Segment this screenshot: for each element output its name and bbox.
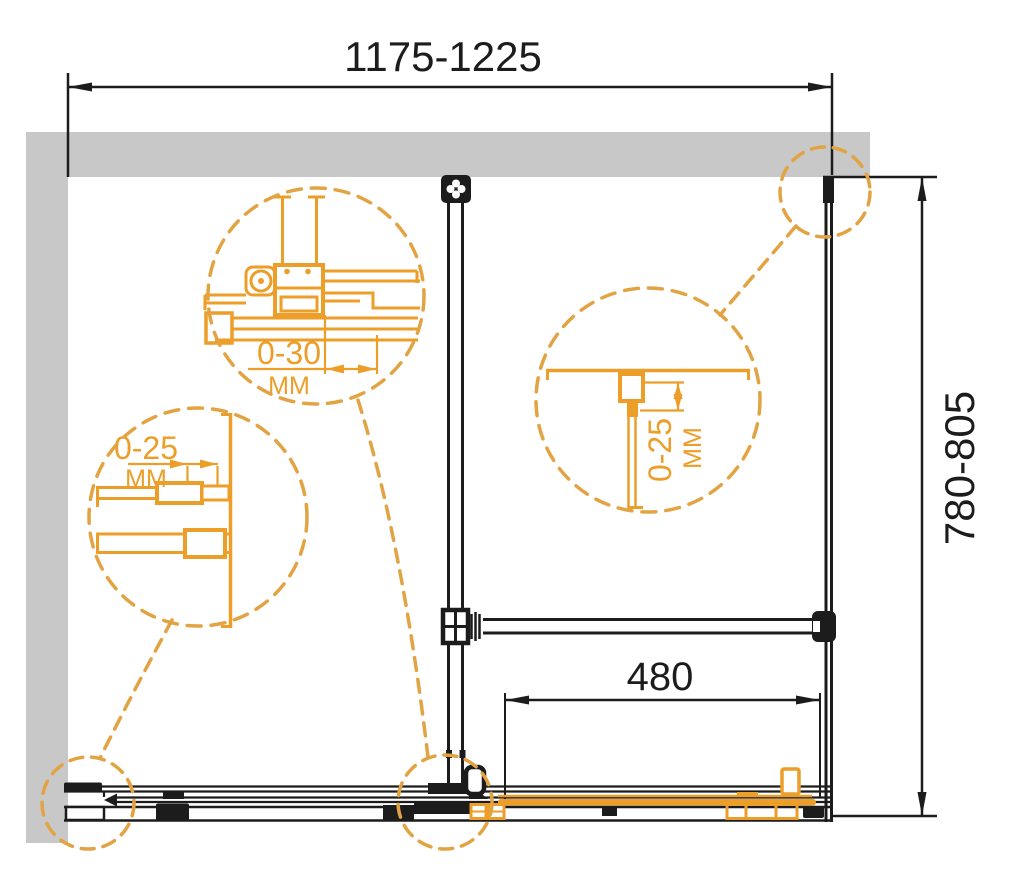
wall-bracket-icon bbox=[441, 175, 471, 203]
stabilizer-bar bbox=[443, 610, 836, 643]
wall-side-left bbox=[26, 132, 68, 843]
sliding-door bbox=[471, 769, 816, 819]
door-guide-bracket-icon bbox=[466, 767, 484, 794]
right-profile-adjust-unit: MM bbox=[679, 427, 707, 469]
rail-end-cap-icon bbox=[64, 783, 102, 793]
dimension-opening: 480 bbox=[505, 655, 820, 799]
callout-connector bbox=[720, 226, 796, 315]
left-profile-adjust-unit: MM bbox=[125, 465, 167, 493]
depth-dimension-label: 780-805 bbox=[936, 391, 983, 545]
roller-adjust-value: 0-30 bbox=[257, 335, 321, 371]
side-panel-right bbox=[823, 177, 834, 822]
door-handle-icon bbox=[782, 769, 799, 794]
rail-arrow-cap-icon bbox=[104, 794, 117, 807]
bar-clamp-left-icon bbox=[443, 610, 480, 643]
wall-profile-icon bbox=[823, 177, 834, 203]
callout-connector bbox=[358, 400, 428, 757]
detail-right-dimension: 0-25 MM bbox=[640, 382, 707, 482]
opening-dimension-label: 480 bbox=[627, 655, 694, 699]
right-profile-adjust-value: 0-25 bbox=[642, 418, 678, 482]
technical-drawing-page: 1175-1225 780-805 480 bbox=[0, 0, 1017, 889]
fixed-panel-middle bbox=[441, 175, 471, 783]
shower-enclosure-plan-diagram: 1175-1225 780-805 480 bbox=[0, 0, 1017, 889]
bottom-rail-cap-icon bbox=[66, 807, 104, 820]
width-dimension-label: 1175-1225 bbox=[344, 33, 542, 80]
dimension-depth: 780-805 bbox=[823, 177, 983, 816]
wall-back bbox=[26, 132, 870, 177]
roller-block-icon bbox=[156, 804, 189, 821]
roller-adjust-unit: MM bbox=[268, 372, 310, 400]
callout-connector bbox=[100, 620, 172, 758]
detail-roller-assembly: 0-30 MM bbox=[205, 197, 420, 400]
bar-clamp-right-icon bbox=[812, 611, 836, 642]
